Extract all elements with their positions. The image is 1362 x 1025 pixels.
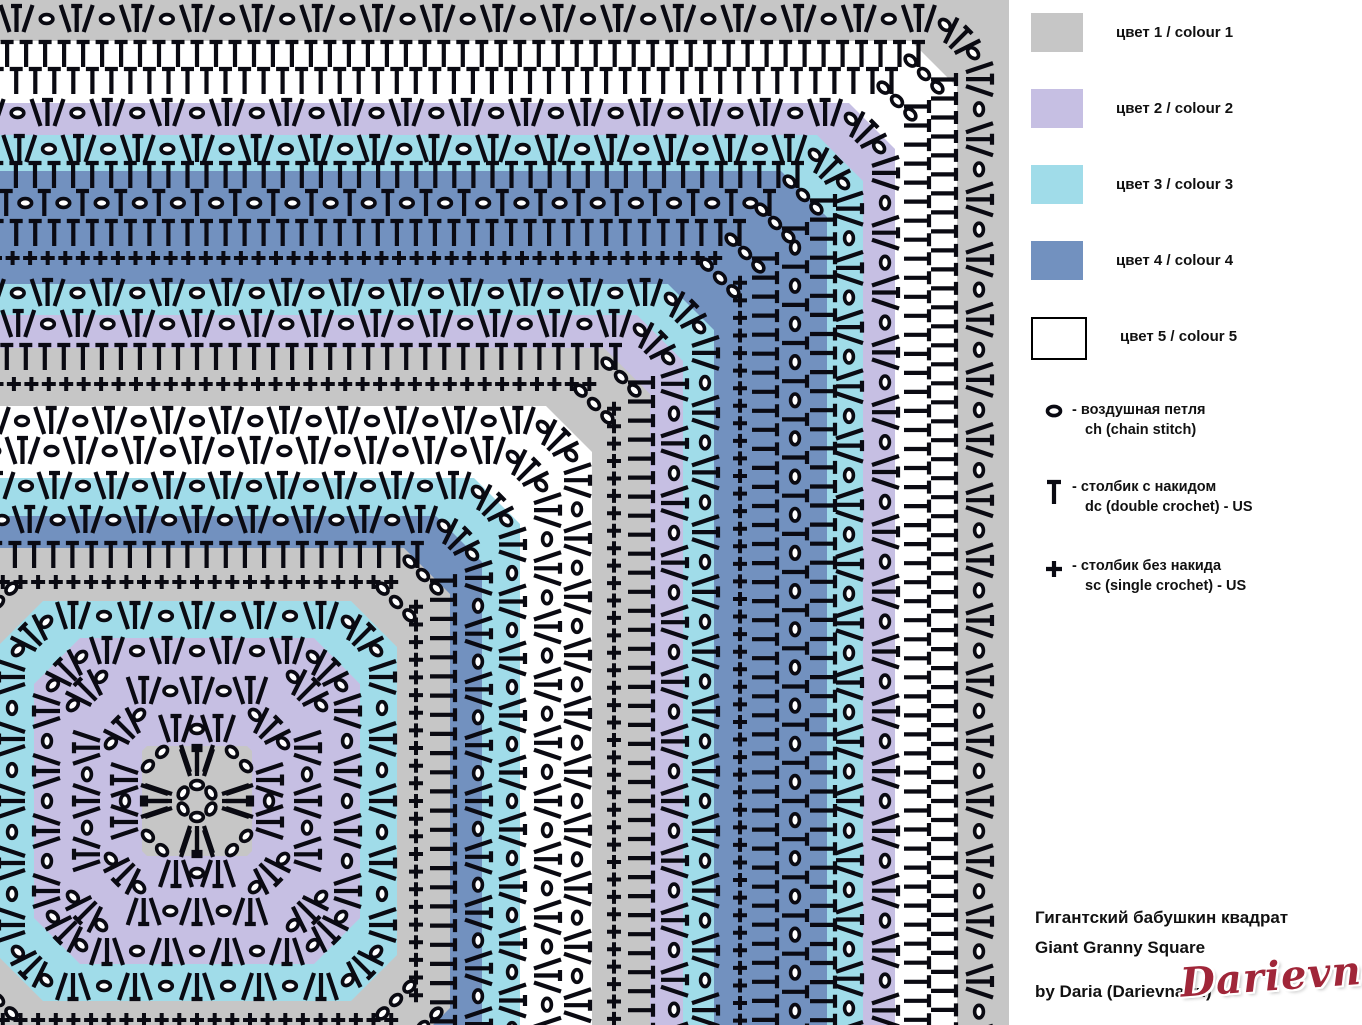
colour-5-label: цвет 5 / colour 5 — [1120, 317, 1237, 356]
single-crochet-label-en: sc (single crochet) - US — [1072, 576, 1246, 596]
legend-row-colour-4: цвет 4 / colour 4 — [1031, 241, 1233, 281]
double-crochet-text: - столбик с накидом dc (double crochet) … — [1072, 477, 1253, 517]
colour-3-swatch — [1031, 165, 1083, 204]
legend-row-single-crochet: - столбик без накида sc (single crochet)… — [1042, 556, 1246, 596]
legend-row-double-crochet: - столбик с накидом dc (double crochet) … — [1042, 477, 1253, 517]
chain-stitch-label-ru: - воздушная петля — [1072, 400, 1206, 420]
single-crochet-icon — [1042, 556, 1072, 585]
legend-row-colour-3: цвет 3 / colour 3 — [1031, 165, 1233, 205]
legend-row-colour-2: цвет 2 / colour 2 — [1031, 89, 1233, 129]
chain-stitch-icon — [1042, 400, 1072, 425]
legend-row-chain-stitch: - воздушная петля ch (chain stitch) — [1042, 400, 1206, 440]
colour-1-label: цвет 1 / colour 1 — [1116, 13, 1233, 52]
title-russian: Гигантский бабушкин квадрат — [1035, 908, 1288, 928]
double-crochet-label-en: dc (double crochet) - US — [1072, 497, 1253, 517]
colour-4-label: цвет 4 / colour 4 — [1116, 241, 1233, 280]
legend-panel: цвет 1 / colour 1 цвет 2 / colour 2 цвет… — [1012, 0, 1362, 1025]
single-crochet-label-ru: - столбик без накида — [1072, 556, 1246, 576]
single-crochet-text: - столбик без накида sc (single crochet)… — [1072, 556, 1246, 596]
double-crochet-icon — [1042, 477, 1072, 510]
colour-5-swatch — [1031, 317, 1087, 360]
colour-3-label: цвет 3 / colour 3 — [1116, 165, 1233, 204]
title-english: Giant Granny Square — [1035, 938, 1205, 958]
legend-row-colour-5: цвет 5 / colour 5 — [1031, 317, 1237, 357]
colour-2-label: цвет 2 / colour 2 — [1116, 89, 1233, 128]
colour-2-swatch — [1031, 89, 1083, 128]
watermark-logo: Darievna.ru — [1179, 940, 1362, 1006]
page: цвет 1 / colour 1 цвет 2 / colour 2 цвет… — [0, 0, 1362, 1025]
chain-stitch-label-en: ch (chain stitch) — [1072, 420, 1206, 440]
colour-1-swatch — [1031, 13, 1083, 52]
granny-square-crochet-chart — [0, 0, 1012, 1025]
legend-row-colour-1: цвет 1 / colour 1 — [1031, 13, 1233, 53]
chain-stitch-text: - воздушная петля ch (chain stitch) — [1072, 400, 1206, 440]
colour-4-swatch — [1031, 241, 1083, 280]
double-crochet-label-ru: - столбик с накидом — [1072, 477, 1253, 497]
